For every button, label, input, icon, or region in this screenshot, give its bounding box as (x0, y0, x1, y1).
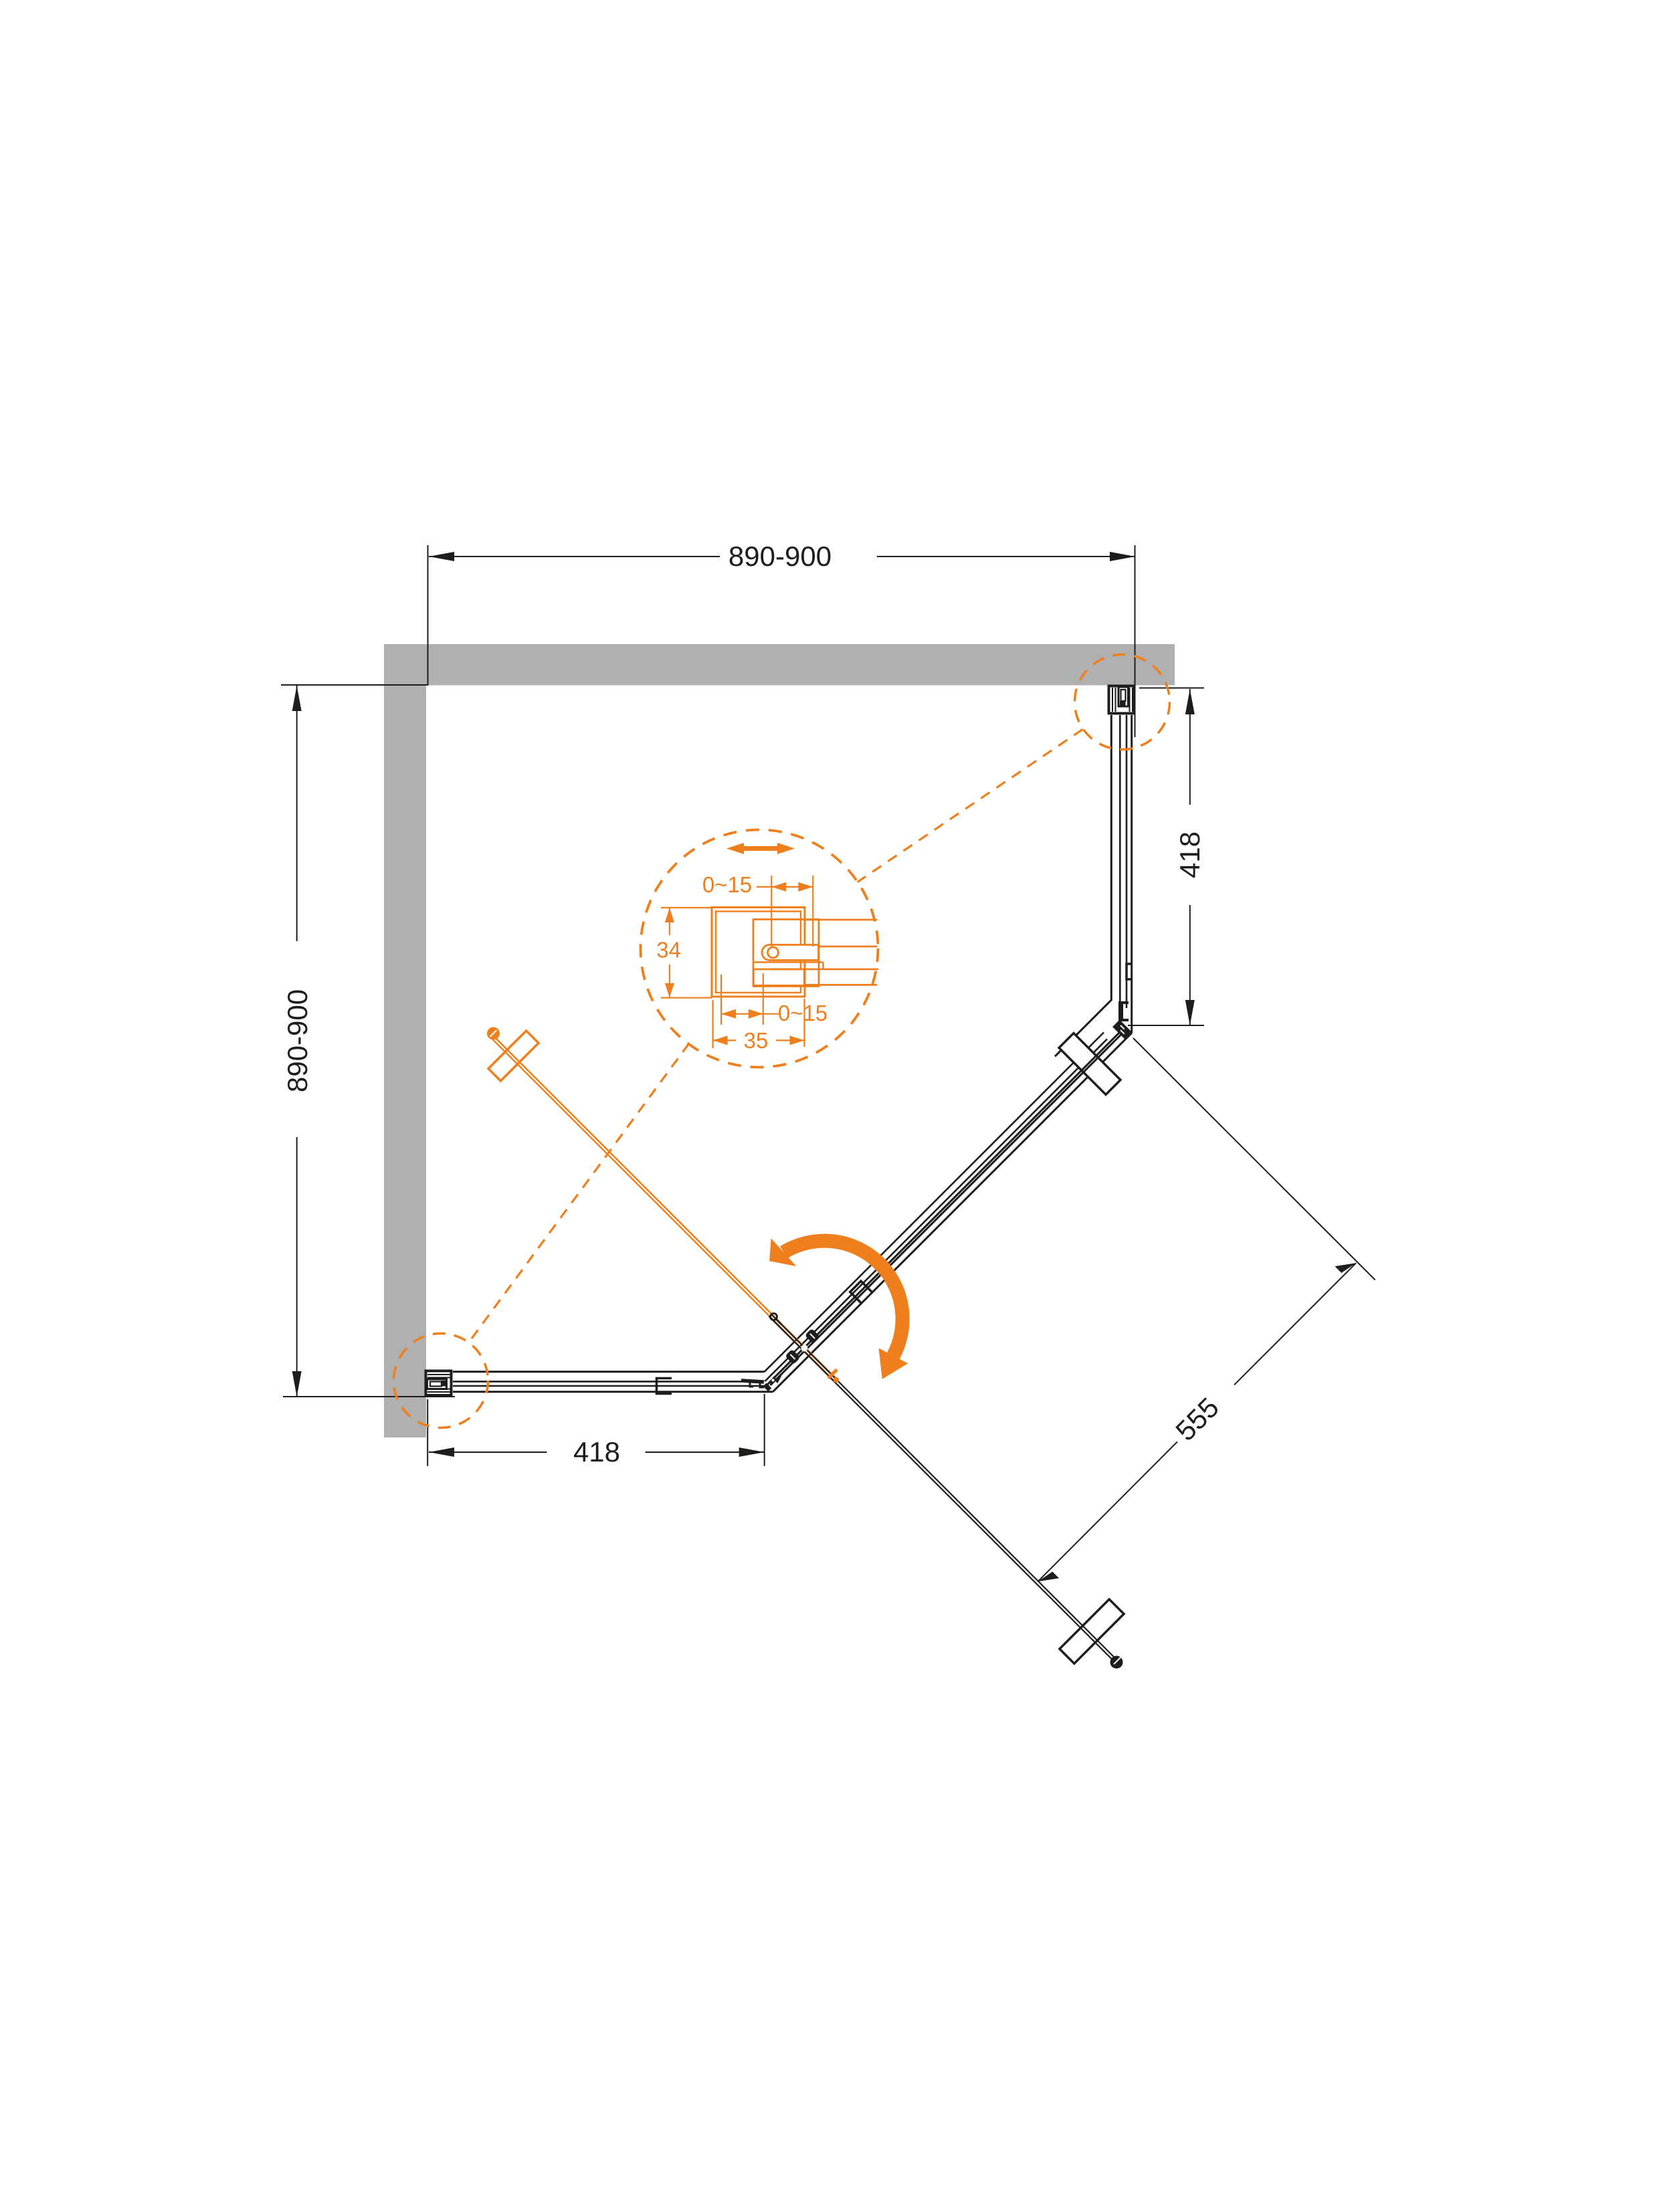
svg-text:35: 35 (744, 1028, 769, 1053)
svg-text:0~15: 0~15 (702, 872, 752, 897)
svg-text:0~15: 0~15 (778, 1001, 827, 1025)
svg-text:890-900: 890-900 (728, 540, 832, 572)
svg-text:418: 418 (1174, 831, 1205, 878)
svg-text:890-900: 890-900 (282, 989, 313, 1092)
svg-text:34: 34 (656, 938, 681, 963)
svg-text:418: 418 (573, 1436, 620, 1468)
